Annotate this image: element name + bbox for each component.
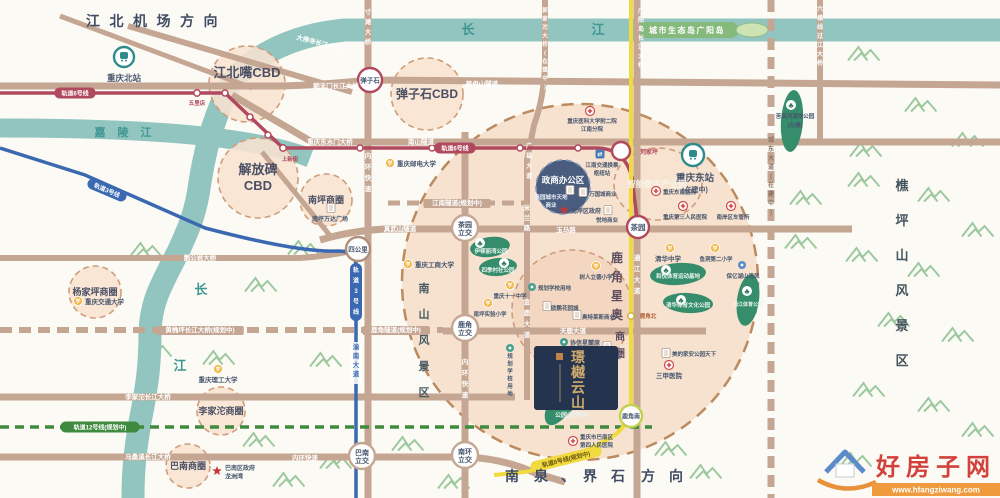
park-label: 和悦体育运动基地 (656, 272, 701, 280)
scenic-label: 坪 (895, 213, 908, 228)
direction-label: 界 (583, 468, 598, 484)
road-label: 大 (526, 162, 532, 170)
metro-station-dot (247, 114, 253, 120)
park-label: 伊顿丽湾公园 (473, 247, 508, 255)
road-label: 六 (817, 5, 823, 13)
road-label: 滩 (365, 17, 372, 26)
road-label: 江 (634, 264, 641, 273)
road-label: 快 (365, 173, 372, 182)
road-label: 马桑溪长江大桥 (125, 452, 171, 461)
scenic-label: 区 (895, 353, 908, 368)
map-label: 学 (593, 263, 598, 270)
road-label: 城 (768, 136, 774, 144)
park-label: 公园(规划中) (555, 411, 589, 419)
scenic-label: 风 (419, 333, 430, 347)
road-label: 过 (817, 32, 823, 40)
direction-label: 南 (505, 468, 519, 484)
station-metro: 鹿角北 (628, 312, 657, 320)
poi-label: 第四人民医院 (580, 441, 614, 449)
poi-label: 规划学校用地 (538, 284, 572, 292)
map-label: 轨道12号线(规划中) (74, 423, 127, 431)
road-label: 路 (524, 223, 531, 232)
train-icon (121, 60, 123, 62)
road-label: 天鹿大道 (560, 326, 587, 335)
poi-label: 树人立德小学 (579, 273, 613, 281)
road-label: 大 (768, 154, 774, 162)
road-label: 道 (524, 330, 531, 339)
road-label: 道 (634, 286, 641, 295)
road-label: 江 (638, 43, 644, 51)
station-metro: 茶园立交 (452, 215, 478, 241)
road-label: 中 (768, 199, 774, 207)
road-label: 在 (542, 57, 548, 65)
road-label: 江 (817, 41, 823, 49)
district-label: 角 (611, 269, 623, 284)
train-icon (125, 60, 127, 62)
road-label: 大 (365, 27, 372, 36)
district-label: 星 (611, 289, 623, 303)
park-label: 通江体育公园 (733, 301, 763, 308)
poi-label: 重庆医科大学附二院 (567, 117, 617, 125)
map-label: ♣ (501, 259, 507, 268)
road-label: 广 (638, 7, 644, 15)
road-label: 玉马路 (556, 225, 576, 234)
direction-label: 机 (133, 13, 147, 29)
district-label: 弹子石CBD (396, 86, 458, 101)
map-label: 五里店 (189, 99, 206, 107)
poi-label: 协信星麓原 (570, 339, 600, 347)
road-label: 大 (353, 360, 360, 369)
district-label: 政商办公区 (542, 175, 585, 185)
map-label: 学 (712, 245, 717, 252)
map-label: 立交 (458, 228, 473, 237)
station-circle (280, 145, 286, 151)
map-label: 鹿角南 (621, 412, 640, 420)
poi-label: 保亿湖山清风 (725, 272, 760, 280)
road-label: 道 (526, 172, 532, 180)
road-label: 米 (524, 203, 531, 212)
direction-label: 方 (180, 13, 194, 29)
map-label: 上新街 (282, 155, 299, 163)
poi-label: 南岸区政府 (571, 207, 601, 215)
metro-station-dot (265, 132, 271, 138)
eco-island-label: 城市生态岛广阳岛 (649, 25, 725, 35)
map-label: 号 (353, 298, 359, 306)
map-label: 鹿角北 (639, 312, 657, 320)
poi-label: 重庆十一中学 (493, 292, 527, 300)
direction-label: 向 (204, 13, 218, 29)
map-label: 四公里 (348, 244, 368, 253)
poi-label: 重庆工商大学 (415, 260, 455, 269)
road-label: 内环快速 (292, 453, 319, 462)
district-label: 商 (615, 330, 625, 343)
map-label: 线 (353, 308, 359, 316)
poi-label: 规 (507, 352, 513, 360)
direction-label: 、 (561, 468, 575, 484)
poi-label: 重庆交通大学 (85, 297, 125, 306)
road-label: 鹿角隧道(规划中) (371, 325, 421, 334)
direction-label: 北 (110, 13, 124, 29)
district-circle-10 (536, 160, 590, 214)
road-label: 大 (638, 52, 644, 60)
station-metro: 四公里 (346, 237, 370, 261)
road-label: 建 (542, 66, 548, 74)
train-icon (120, 52, 128, 59)
poi-label: 奥特莱斯商业 (582, 313, 616, 321)
scenic-label: 山 (895, 248, 908, 263)
road-label: 兰 (524, 213, 531, 222)
poi-label: 枢纽站 (594, 169, 611, 177)
metro-line-pill: 轨道3号线 (350, 263, 362, 321)
road-label: 鹅公岩大桥 (184, 253, 217, 262)
station-metro: 茶园 (627, 216, 649, 238)
map-label: 弹子石 (360, 75, 380, 84)
direction-label: 泉 (534, 468, 549, 484)
road-label: 内 (462, 357, 469, 366)
map-label: 轨道6号线 (61, 89, 88, 97)
road-label: 大 (817, 50, 823, 58)
poi-label: 学 (507, 367, 513, 375)
map-label: 立交 (458, 328, 473, 337)
road-label: 通 (634, 253, 641, 262)
park-label: 苦溪河湿地公园 (776, 112, 815, 120)
poi-label: 美的家安公园天下 (672, 350, 717, 358)
train-icon (689, 150, 697, 157)
poi-label: 鱼洞第二小学 (699, 255, 733, 263)
map-label: 学 (405, 261, 410, 268)
station-metro: 鹿角南 (620, 405, 642, 427)
road-label: 中 (542, 74, 548, 82)
road-label: 东 (768, 145, 774, 153)
residence-icon (741, 264, 744, 267)
poi-label: 清华中学 (655, 254, 682, 263)
district-label: 解放碑 (237, 162, 277, 177)
poi-label: 重庆第三人民医院 (663, 213, 708, 221)
station-metro: 巴南立交 (349, 443, 375, 469)
road-label: 家 (542, 15, 548, 23)
map-label: 陵 (118, 125, 130, 139)
project-name-char: 山 (571, 396, 585, 412)
map-label: 轨 (353, 266, 359, 274)
watermark-url: www.hfangziwang.com (891, 486, 980, 495)
poi-label: 地 (507, 390, 513, 398)
district-label: 南坪商圈 (308, 194, 344, 205)
scenic-label: 风 (895, 283, 908, 298)
map-label: 巴南 (355, 448, 369, 457)
road-label: 在 (768, 181, 774, 189)
metro-line-pill: 轨道6号线 (434, 143, 476, 154)
road-label: 线 (817, 23, 823, 31)
road-label: 内 (365, 151, 372, 160)
poi-label: 重庆邮电大学 (397, 159, 437, 168)
road-label: 沱 (542, 23, 548, 31)
scenic-label: 景 (895, 318, 908, 333)
map-label: ♣ (744, 287, 750, 296)
poi-label: 划 (507, 360, 513, 368)
location-map: 长江长江嘉陵江城市生态岛广阳岛♣♣♣♣♣♣♣弹子石刘家坪茶园四公里鹿角南茶园立交… (0, 0, 1000, 498)
logo-seal-icon (556, 353, 563, 360)
park-label: 四季村社公园 (481, 266, 515, 274)
poi-label: 江南交通换乘 (585, 161, 619, 169)
district-label: 巴南商圈 (170, 460, 206, 471)
map-label: 学 (485, 300, 490, 307)
map-label: 学 (387, 160, 392, 167)
map-label: ♣ (788, 101, 794, 110)
watermark-house-icon (836, 464, 854, 477)
map-label: 南环 (458, 447, 472, 456)
map-label: 学 (507, 282, 512, 289)
road-label: 长 (638, 34, 645, 42)
project-logo: 璟樾云山 (534, 346, 618, 412)
station-metro: 鹿角立交 (452, 315, 478, 341)
map-label: 茶园 (630, 222, 646, 232)
watermark-site-name: 好房子网 (875, 453, 996, 481)
poi-label: 重庆市巴南区 (580, 433, 614, 441)
poi-label: 重庆东南医院 (663, 188, 697, 196)
direction-label: 场 (157, 13, 171, 29)
planned-school-icon (509, 347, 512, 350)
road-label: 建 (768, 190, 775, 198)
district-label: CBD (244, 178, 272, 193)
map-label: 江 (141, 125, 152, 139)
road-label: 寸 (365, 7, 372, 16)
road-label: 快 (462, 379, 469, 388)
map-label: 茶园 (457, 220, 472, 229)
poi-label: 欧鹏花园城 (551, 304, 579, 312)
poi-label: 南坪万达广场 (312, 215, 348, 223)
map-label: 重庆北站 (107, 73, 142, 83)
road-label: 大 (524, 319, 531, 328)
district-label: 李家沱商圈 (197, 405, 243, 416)
road-label: 阳 (638, 16, 644, 24)
map-label: ♣ (477, 239, 483, 248)
project-name-char: 璟 (571, 350, 585, 366)
map-label: 立交 (355, 456, 370, 465)
poi-label: 商业 (545, 201, 557, 209)
road-label: 鹿 (524, 308, 531, 317)
road-label: 渝 (353, 342, 360, 351)
poi-label: 用 (506, 383, 513, 390)
road-label: 横 (817, 14, 824, 22)
poi-label: 悦地商业 (596, 216, 619, 224)
road-label: 桥 (817, 59, 824, 67)
scenic-label: 景 (418, 360, 430, 373)
road-label: 真武山隧道 (384, 224, 417, 233)
station-circle (628, 313, 634, 319)
poi-label: 南岸区车管所 (716, 213, 750, 221)
scenic-label: 南 (419, 281, 430, 295)
road-label: 大 (542, 32, 548, 40)
road-label: 黄桷坪长江大桥(规划中) (165, 325, 234, 334)
map-canvas: 长江长江嘉陵江城市生态岛广阳岛♣♣♣♣♣♣♣弹子石刘家坪茶园四公里鹿角南茶园立交… (0, 0, 1000, 498)
road-label: 桥 (638, 61, 645, 69)
project-name-char: 云 (571, 380, 585, 396)
road-label: 李家沱长江大桥 (124, 392, 171, 401)
station-metro: 南环立交 (452, 442, 478, 468)
road-label: ) (770, 210, 772, 216)
metro-station-dot (357, 145, 363, 151)
park-label: 清华体育文化公园 (666, 301, 711, 309)
train-icon (694, 158, 696, 160)
metro-line-pill: 轨道12号线(规划中) (60, 422, 139, 433)
scenic-label: 樵 (895, 178, 908, 193)
train-icon (690, 158, 692, 160)
road-label: 环 (462, 369, 469, 377)
project-name-char: 樾 (571, 364, 586, 381)
road-label: 南 (353, 351, 360, 360)
map-label: 鹿角 (458, 320, 472, 329)
poi-label: 龙洲湾 (225, 473, 243, 481)
poi-label: 重庆理工大学 (199, 375, 239, 384)
road-label: 福 (525, 152, 532, 160)
map-label: 江 (591, 22, 604, 37)
map-label: 学 (75, 298, 80, 305)
map-label: 嘉 (94, 125, 106, 139)
direction-label: 石 (610, 468, 625, 484)
guangyang-island (736, 23, 768, 37)
road-label: 朝天门长江大桥 (313, 81, 359, 90)
direction-label: 向 (669, 468, 683, 484)
road-label: 速 (462, 390, 469, 399)
map-label: 江 (173, 358, 186, 373)
road-label: 道 (768, 163, 774, 171)
district-label: 江北嘴CBD (213, 65, 280, 80)
road-label: 慈母山隧道 (466, 79, 499, 88)
road-label: 环 (365, 163, 372, 171)
station-circle (612, 142, 630, 160)
poi-label: 三甲医院 (656, 371, 683, 380)
scenic-label: 区 (419, 386, 430, 399)
road-label: 岛 (638, 25, 644, 33)
map-label: 长 (461, 22, 475, 37)
road-label: 桥 (365, 37, 372, 46)
metro-line-pill: 轨道6号线 (54, 88, 96, 99)
map-label: 道 (353, 277, 359, 285)
road-label: 道 (353, 369, 360, 378)
map-label: 轨道6号线 (441, 144, 468, 152)
road-label: 桥 (542, 40, 548, 48)
map-label: ⇄ (597, 151, 602, 158)
poi-label: 校 (507, 375, 513, 383)
metro-station-dot (517, 145, 523, 151)
road-label: ( (770, 174, 772, 180)
map-label: 长 (194, 282, 208, 297)
metro-station-dot (222, 90, 228, 96)
road-label: 南山隧道 (408, 137, 435, 146)
station-circle (194, 90, 200, 96)
district-label: 鹿 (611, 250, 623, 265)
metro-station-dot (575, 145, 581, 151)
park-label: (在建) (788, 121, 803, 129)
district-label: 杨家坪商圈 (72, 286, 117, 297)
poi-label: 江南分院 (581, 125, 604, 133)
map-label: 学 (215, 366, 220, 373)
station-metro: 弹子石 (358, 68, 382, 92)
road-label: 速 (365, 184, 372, 193)
road-label: 江南隧道(规划中) (432, 198, 482, 207)
planned-school-icon (531, 286, 534, 289)
road-label: 重庆东水门大桥 (307, 137, 353, 146)
map-label: 立交 (458, 455, 473, 464)
direction-label: 方 (641, 468, 655, 484)
road-label: 广 (526, 142, 532, 150)
road-label: ( (544, 51, 546, 57)
poi-label: 南坪实验小学 (473, 310, 507, 318)
residence-icon (563, 341, 566, 344)
map-label: 学 (667, 245, 672, 252)
poi-label: 巴南区政府 (225, 464, 255, 472)
road-label: 郭 (542, 6, 548, 14)
poi-label: 奥园城市天地 (534, 193, 568, 201)
map-label: 刘家坪 (640, 148, 658, 156)
scenic-label: 山 (419, 307, 430, 321)
direction-label: 江 (86, 13, 100, 29)
road-label: ) (544, 85, 546, 91)
poi-label: 万国城商业 (588, 190, 617, 198)
road-label: 大 (634, 275, 641, 284)
